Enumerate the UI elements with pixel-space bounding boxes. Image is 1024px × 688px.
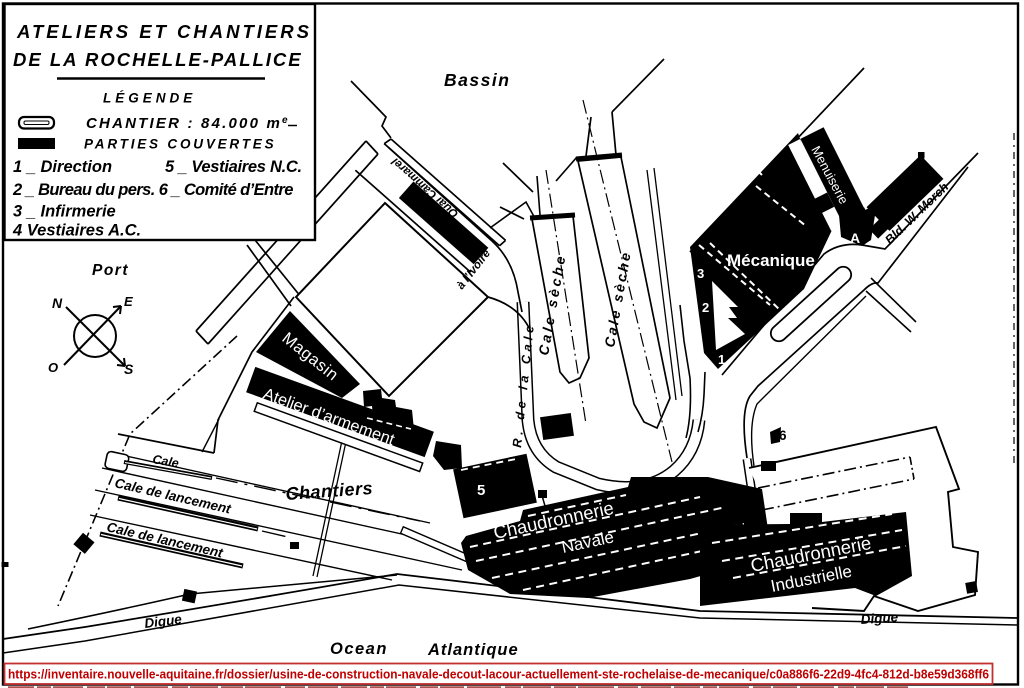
svg-text:Digue: Digue (860, 609, 899, 627)
svg-text:Ocean: Ocean (330, 640, 388, 658)
svg-text:3: 3 (697, 266, 704, 281)
svg-text:Mécanique: Mécanique (727, 251, 815, 270)
svg-text:A: A (850, 230, 860, 246)
svg-text:6: 6 (779, 428, 787, 443)
svg-text:E: E (124, 294, 133, 309)
svg-text:ATELIERS ET CHANTIERS: ATELIERS ET CHANTIERS (16, 21, 312, 42)
svg-text:5: 5 (477, 482, 485, 499)
svg-text:CHANTIER : 84.000 me: CHANTIER : 84.000 me (86, 115, 290, 132)
svg-text:O: O (48, 360, 58, 375)
svg-text:2: 2 (702, 300, 709, 315)
svg-text:4 Vestiaires A.C.: 4 Vestiaires A.C. (12, 222, 141, 240)
svg-text:3 _ Infirmerie: 3 _ Infirmerie (13, 203, 116, 221)
svg-text:1 _ Direction: 1 _ Direction (13, 158, 112, 176)
svg-text:1: 1 (718, 352, 725, 367)
svg-text:N: N (52, 295, 63, 311)
svg-text:S: S (124, 361, 134, 377)
svg-text:Atlantique: Atlantique (427, 641, 519, 659)
svg-text:https://inventaire.nouvelle-aq: https://inventaire.nouvelle-aquitaine.fr… (8, 667, 989, 682)
svg-text:5 _ Vestiaires N.C.: 5 _ Vestiaires N.C. (165, 158, 302, 176)
svg-text:LÉGENDE: LÉGENDE (103, 91, 196, 106)
svg-text:PARTIES COUVERTES: PARTIES COUVERTES (84, 137, 276, 152)
svg-text:Bassin: Bassin (444, 70, 510, 90)
svg-text:DE LA ROCHELLE-PALLICE: DE LA ROCHELLE-PALLICE (13, 49, 303, 70)
svg-text:Port: Port (92, 262, 129, 279)
svg-text:2 _ Bureau du pers. 6 _ Comité: 2 _ Bureau du pers. 6 _ Comité d’Entre (12, 181, 293, 199)
